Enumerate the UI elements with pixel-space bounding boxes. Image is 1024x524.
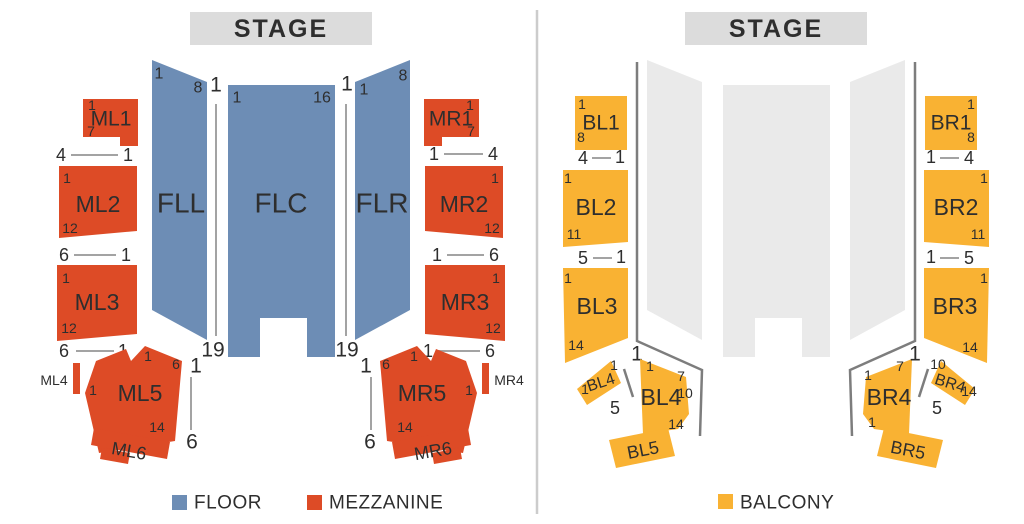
legend-floor-mezzanine: FLOOR MEZZANINE — [172, 493, 443, 514]
section-br4-label: BR4 — [867, 384, 912, 410]
row-marker-bl1-right: 1 — [615, 147, 625, 167]
row-marker-bl1: 4 1 — [578, 147, 625, 168]
row-marker-ml2-left: 6 — [59, 245, 69, 265]
section-ml5-label: ML5 — [118, 380, 163, 406]
section-flc-seat-first: 1 — [233, 90, 242, 107]
seating-chart-page: STAGE FLL 1 8 1 19 FLC 1 16 1 19 FLR 1 8… — [0, 0, 1024, 524]
section-mr4[interactable] — [482, 363, 489, 394]
section-bl3-row-last: 14 — [568, 337, 584, 353]
aisle-br4-bottom-num: 5 — [932, 398, 942, 418]
section-fll-label: FLL — [157, 188, 205, 219]
section-bl2-row-last: 11 — [567, 226, 582, 242]
aisle-floor-left-top-num: 1 — [210, 74, 222, 97]
section-mr3-label: MR3 — [441, 289, 490, 315]
aisle-ml5-bottom-num: 6 — [186, 431, 198, 454]
section-flr-label: FLR — [356, 188, 409, 219]
section-fll-seat-first: 1 — [155, 66, 164, 83]
row-marker-mr1-right: 4 — [488, 144, 498, 164]
stage-label-right: STAGE — [729, 15, 823, 43]
legend-balcony: BALCONY — [718, 493, 834, 514]
section-br4-small-num-top: 10 — [930, 356, 946, 372]
section-bl1-row-first: 1 — [578, 96, 586, 112]
section-br4-num-tr: 7 — [896, 358, 904, 374]
section-ml5-num-top: 1 — [144, 348, 152, 364]
legend-label-mezzanine: MEZZANINE — [329, 493, 443, 514]
section-flr-seat-last: 8 — [399, 68, 408, 85]
row-marker-bl2: 5 1 — [578, 247, 626, 268]
section-ml5-num-bottom: 14 — [149, 419, 165, 435]
section-mr3-row-last: 12 — [485, 320, 501, 336]
section-mr5-num-right: 1 — [465, 382, 473, 398]
stage-label-left: STAGE — [234, 15, 328, 43]
row-marker-mr2-right: 6 — [489, 245, 499, 265]
legend-swatch-mezzanine — [307, 495, 322, 510]
balcony-map: STAGE 1 8 BL1 4 1 1 11 BL2 5 1 1 14 BL3 … — [563, 12, 989, 514]
aisle-bl4-bottom-num: 5 — [610, 398, 620, 418]
section-ml3-row-first: 1 — [62, 270, 70, 286]
legend-swatch-balcony — [718, 494, 733, 509]
section-ml3-row-last: 12 — [61, 320, 77, 336]
aisle-floor-left-bottom-num: 19 — [201, 339, 224, 362]
muted-floor-fll — [647, 60, 702, 340]
aisle-ml5-top-num: 1 — [190, 355, 202, 378]
section-bl4-label: BL4 — [641, 384, 682, 410]
section-br2-label: BR2 — [934, 194, 979, 220]
section-ml4[interactable] — [73, 363, 80, 394]
muted-floor-flr — [850, 60, 905, 340]
section-mr5-label: MR5 — [398, 380, 447, 406]
section-mr1-label: MR1 — [429, 108, 473, 131]
row-marker-mr1: 1 4 — [429, 144, 498, 164]
section-bl4-num-br: 14 — [668, 416, 684, 432]
section-br1-label: BR1 — [931, 112, 972, 135]
row-marker-br1-left: 1 — [926, 147, 936, 167]
row-marker-br2: 1 5 — [926, 247, 974, 268]
section-ml2-row-first: 1 — [63, 170, 71, 186]
aisle-floor-right-top-num: 1 — [341, 73, 353, 96]
section-br2-row-first: 1 — [980, 170, 988, 186]
section-flc[interactable] — [228, 85, 335, 357]
section-mr5-num-top: 1 — [410, 348, 418, 364]
row-marker-ml1-left: 4 — [56, 145, 66, 165]
section-bl4-num-tl: 1 — [646, 358, 654, 374]
section-mr5-num-bottom: 14 — [397, 419, 413, 435]
row-marker-br1: 1 4 — [926, 147, 974, 168]
section-ml5-num-left: 1 — [89, 382, 97, 398]
section-bl1-label: BL1 — [582, 112, 619, 135]
section-br4-num-bl: 1 — [868, 414, 876, 430]
row-marker-mr1-left: 1 — [429, 144, 439, 164]
section-bl4-num-tr: 7 — [677, 368, 685, 384]
legend-label-floor: FLOOR — [194, 493, 262, 514]
section-flc-seat-last: 16 — [313, 90, 331, 107]
aisle-line-bl4 — [624, 369, 633, 397]
section-bl2-row-first: 1 — [564, 170, 572, 186]
section-ml1-label: ML1 — [91, 108, 132, 131]
row-marker-mr2: 1 6 — [432, 245, 499, 265]
section-ml3-label: ML3 — [75, 289, 120, 315]
row-marker-ml1: 4 1 — [56, 145, 133, 165]
section-ml5-num-topright: 6 — [172, 356, 180, 372]
section-mr2-row-first: 1 — [491, 170, 499, 186]
row-marker-ml2-right: 1 — [121, 245, 131, 265]
row-marker-br2-left: 1 — [926, 247, 936, 267]
row-marker-ml1-right: 1 — [123, 145, 133, 165]
section-fll-seat-last: 8 — [194, 80, 203, 97]
row-marker-br1-right: 4 — [964, 148, 974, 168]
section-bl3-label: BL3 — [577, 293, 618, 319]
section-flc-label: FLC — [255, 188, 308, 219]
legend-swatch-floor — [172, 495, 187, 510]
section-br4-num-tl: 1 — [864, 367, 872, 383]
section-flr-seat-first: 1 — [360, 82, 369, 99]
section-bl3-row-first: 1 — [564, 270, 572, 286]
section-mr3-row-first: 1 — [492, 270, 500, 286]
section-ml2-row-last: 12 — [62, 220, 78, 236]
row-marker-bl2-left: 5 — [578, 248, 588, 268]
row-marker-mr3-right: 6 — [485, 341, 495, 361]
section-mr2-label: MR2 — [440, 191, 489, 217]
row-marker-bl2-right: 1 — [616, 247, 626, 267]
section-br1-row-first: 1 — [967, 96, 975, 112]
section-ml2-label: ML2 — [76, 191, 121, 217]
seating-chart-canvas: STAGE FLL 1 8 1 19 FLC 1 16 1 19 FLR 1 8… — [0, 0, 1024, 524]
section-br3-row-first: 1 — [980, 270, 988, 286]
section-bl4-small-label: BL4 — [585, 370, 617, 395]
legend-label-balcony: BALCONY — [740, 493, 834, 514]
aisle-br4-top-num: 1 — [909, 343, 921, 366]
floor-mezzanine-map: STAGE FLL 1 8 1 19 FLC 1 16 1 19 FLR 1 8… — [40, 12, 524, 514]
aisle-floor-right-bottom-num: 19 — [335, 339, 358, 362]
section-br3-row-last: 14 — [962, 339, 978, 355]
section-mr2-row-last: 12 — [484, 220, 500, 236]
muted-floor-flc — [723, 85, 830, 357]
row-marker-mr2-left: 1 — [432, 245, 442, 265]
row-marker-bl1-left: 4 — [578, 148, 588, 168]
row-marker-br2-right: 5 — [964, 248, 974, 268]
aisle-mr5-bottom-num: 6 — [364, 431, 376, 454]
section-mr4-label: MR4 — [494, 372, 524, 388]
aisle-mr5-top-num: 1 — [360, 355, 372, 378]
section-bl2-label: BL2 — [576, 194, 617, 220]
section-ml4-label: ML4 — [40, 372, 67, 388]
section-mr5-num-topleft: 6 — [382, 356, 390, 372]
section-br3-label: BR3 — [933, 293, 978, 319]
aisle-line-br4 — [919, 369, 928, 397]
section-br2-row-last: 11 — [971, 226, 986, 242]
row-marker-ml2: 6 1 — [59, 245, 131, 265]
row-marker-ml3-left: 6 — [59, 341, 69, 361]
